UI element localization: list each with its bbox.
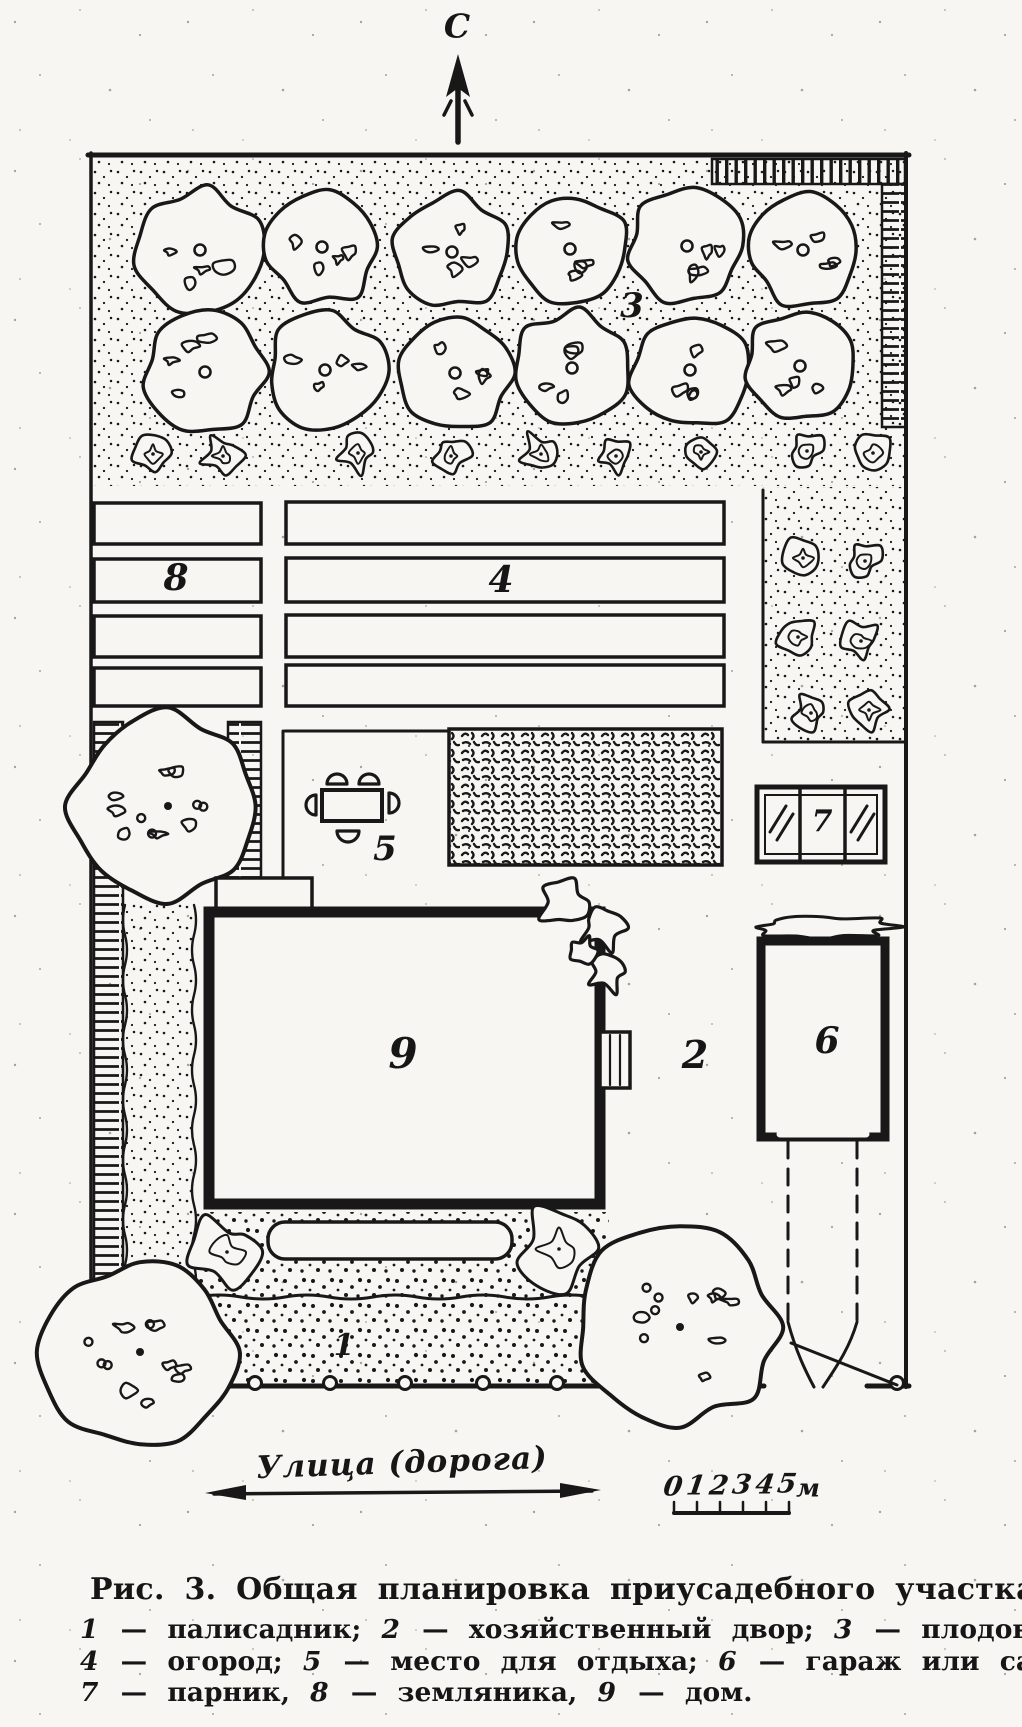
legend-item-number: 8 xyxy=(310,1677,330,1708)
legend-item-number: 3 xyxy=(834,1614,854,1645)
legend-item-text: — земляника, xyxy=(331,1677,598,1708)
scale-digit: 4 xyxy=(754,1472,777,1499)
legend-item-number: 7 xyxy=(80,1677,100,1708)
legend-item-text: — хозяйственный двор; xyxy=(402,1614,834,1645)
area-label-orchard: 3 xyxy=(620,289,644,323)
legend-item-text: — дом. xyxy=(618,1677,753,1708)
scale-digit: 0 xyxy=(662,1474,685,1501)
caption-legend: 1 — палисадник; 2 — хозяйственный двор; … xyxy=(80,1614,960,1709)
area-label-house: 9 xyxy=(388,1033,417,1075)
legend-item-text: — огород; xyxy=(100,1646,302,1677)
legend-item-number: 9 xyxy=(597,1677,617,1708)
caption-title: Рис. 3. Общая планировка приусадебного у… xyxy=(80,1572,960,1607)
scale-digit: 2 xyxy=(708,1473,731,1500)
area-label-front-garden: 1 xyxy=(334,1331,355,1361)
legend-line: 7 — парник, 8 — земляника, 9 — дом. xyxy=(80,1677,960,1709)
compost-patch xyxy=(449,729,722,865)
area-label-greenhouse: 7 xyxy=(812,807,833,837)
scale-digit: 3 xyxy=(731,1472,754,1499)
legend-item-text: — палисадник; xyxy=(100,1614,381,1645)
legend-line: 1 — палисадник; 2 — хозяйственный двор; … xyxy=(80,1614,960,1646)
north-compass-label: С xyxy=(444,10,470,43)
scale-unit: м xyxy=(796,1476,820,1501)
figure-page: С 3 8 4 5 7 9 2 6 1 Улица (дорога) 0 1 2… xyxy=(0,0,1022,1727)
scale-digit: 5 xyxy=(776,1471,799,1498)
legend-item-number: 5 xyxy=(303,1646,323,1677)
legend-item-number: 4 xyxy=(80,1646,100,1677)
area-label-garage: 6 xyxy=(814,1023,839,1059)
legend-item-number: 1 xyxy=(80,1614,100,1645)
legend-item-number: 6 xyxy=(718,1646,738,1677)
area-label-strawberries: 8 xyxy=(163,560,188,596)
legend-item-text: — парник, xyxy=(100,1677,310,1708)
legend-item-text: — гараж или сарай; xyxy=(739,1646,1022,1677)
scale-digit: 1 xyxy=(685,1473,708,1500)
area-label-yard: 2 xyxy=(682,1036,708,1074)
legend-item-text: — место для отдыха; xyxy=(323,1646,718,1677)
area-label-vegetable-garden: 4 xyxy=(488,562,513,598)
legend-line: 4 — огород; 5 — место для отдыха; 6 — га… xyxy=(80,1646,960,1678)
house xyxy=(209,878,630,1204)
legend-item-text: — плодовый сад; xyxy=(854,1614,1022,1645)
area-label-rest-area: 5 xyxy=(373,832,397,866)
figure-caption: Рис. 3. Общая планировка приусадебного у… xyxy=(80,1572,960,1709)
legend-item-number: 2 xyxy=(381,1614,401,1645)
